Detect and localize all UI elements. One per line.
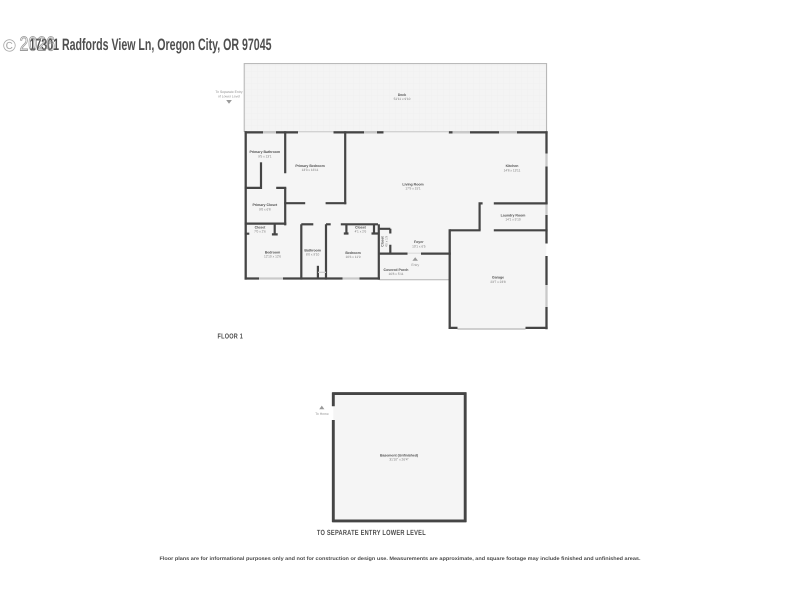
svg-text:10'6 x 11'9: 10'6 x 11'9 (346, 255, 361, 259)
svg-text:TO SEPARATE ENTRY LOWER LEVEL: TO SEPARATE ENTRY LOWER LEVEL (317, 528, 426, 537)
svg-text:17301 Radfords View Ln, Oregon: 17301 Radfords View Ln, Oregon City, OR … (30, 36, 272, 54)
svg-text:16'8 x 5'11: 16'8 x 5'11 (389, 272, 404, 276)
svg-text:4'1 x 2'6: 4'1 x 2'6 (355, 230, 367, 234)
svg-text:14'1 x 5'10: 14'1 x 5'10 (505, 218, 520, 222)
svg-text:51'11 x 9'10: 51'11 x 9'10 (394, 97, 411, 101)
svg-text:2026: 2026 (20, 34, 56, 56)
svg-text:14'8 x 13'11: 14'8 x 13'11 (504, 168, 521, 172)
svg-text:FLOOR 1: FLOOR 1 (218, 332, 244, 341)
svg-text:of Lower Level: of Lower Level (218, 94, 240, 98)
svg-text:Floor plans are for informatio: Floor plans are for informational purpos… (160, 556, 642, 562)
svg-text:17'9 x 15'1: 17'9 x 15'1 (405, 187, 420, 191)
svg-text:To Home: To Home (315, 412, 329, 416)
svg-text:7'0 x 2'6: 7'0 x 2'6 (254, 230, 266, 234)
svg-text:9'5 x 13'1: 9'5 x 13'1 (258, 154, 272, 158)
svg-text:12'10 x 12'6: 12'10 x 12'6 (264, 255, 281, 259)
svg-text:Entry: Entry (411, 263, 419, 267)
svg-text:13'3 x 16'11: 13'3 x 16'11 (302, 168, 319, 172)
svg-text:31'10" x 26'4": 31'10" x 26'4" (389, 458, 408, 462)
svg-text:©: © (3, 36, 16, 56)
svg-text:4'0 x 1'9: 4'0 x 1'9 (385, 236, 389, 248)
svg-text:6'0 x 9'10: 6'0 x 9'10 (306, 253, 320, 257)
svg-text:9'0 x 6'8: 9'0 x 6'8 (259, 207, 271, 211)
svg-text:10'1 x 6'5: 10'1 x 6'5 (412, 244, 426, 248)
svg-text:23'7 x 23'8: 23'7 x 23'8 (490, 280, 505, 284)
